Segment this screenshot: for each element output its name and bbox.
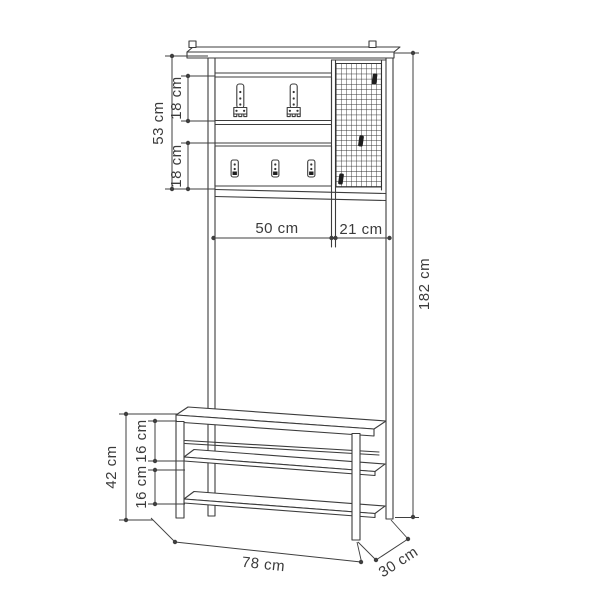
bench-leg-front-right <box>352 434 360 541</box>
wall-tab-left <box>189 41 196 48</box>
dim-total-width: 78 cm <box>151 518 363 575</box>
dim-depth: 30 cm <box>358 520 421 581</box>
dim-label-18cm-top: 18 cm <box>168 76 185 119</box>
dim-total-height: 182 cm <box>394 51 433 519</box>
dim-label-21cm: 21 cm <box>339 221 382 238</box>
dim-label-30cm: 30 cm <box>376 543 422 581</box>
upper-section-rail <box>215 197 386 201</box>
dim-panel-widths: 50 cm 21 cm <box>211 220 391 240</box>
small-hook <box>308 160 315 177</box>
dim-label-42cm: 42 cm <box>103 445 120 488</box>
small-hook <box>231 160 238 177</box>
furniture <box>176 41 400 540</box>
small-hook <box>272 160 279 177</box>
upper-section-rail <box>215 190 386 194</box>
dim-label-182cm: 182 cm <box>416 258 433 310</box>
hook-panel-upper <box>215 73 332 125</box>
dim-label-18cm-bottom: 18 cm <box>168 144 185 187</box>
dim-label-16cm-bottom: 16 cm <box>133 465 150 508</box>
top-board <box>187 41 400 58</box>
dimension-diagram: 53 cm 18 cm 18 cm 50 cm 21 cm <box>0 0 600 600</box>
hall-stand-drawing: 53 cm 18 cm 18 cm 50 cm 21 cm <box>0 0 600 600</box>
wall-tab-right <box>369 41 376 48</box>
mesh-panel <box>332 60 387 190</box>
left-post <box>208 58 215 517</box>
right-post <box>386 58 393 520</box>
dim-label-78cm: 78 cm <box>241 554 286 575</box>
dim-label-53cm: 53 cm <box>150 101 167 144</box>
dim-label-50cm: 50 cm <box>255 220 298 237</box>
dim-label-16cm-top: 16 cm <box>133 419 150 462</box>
